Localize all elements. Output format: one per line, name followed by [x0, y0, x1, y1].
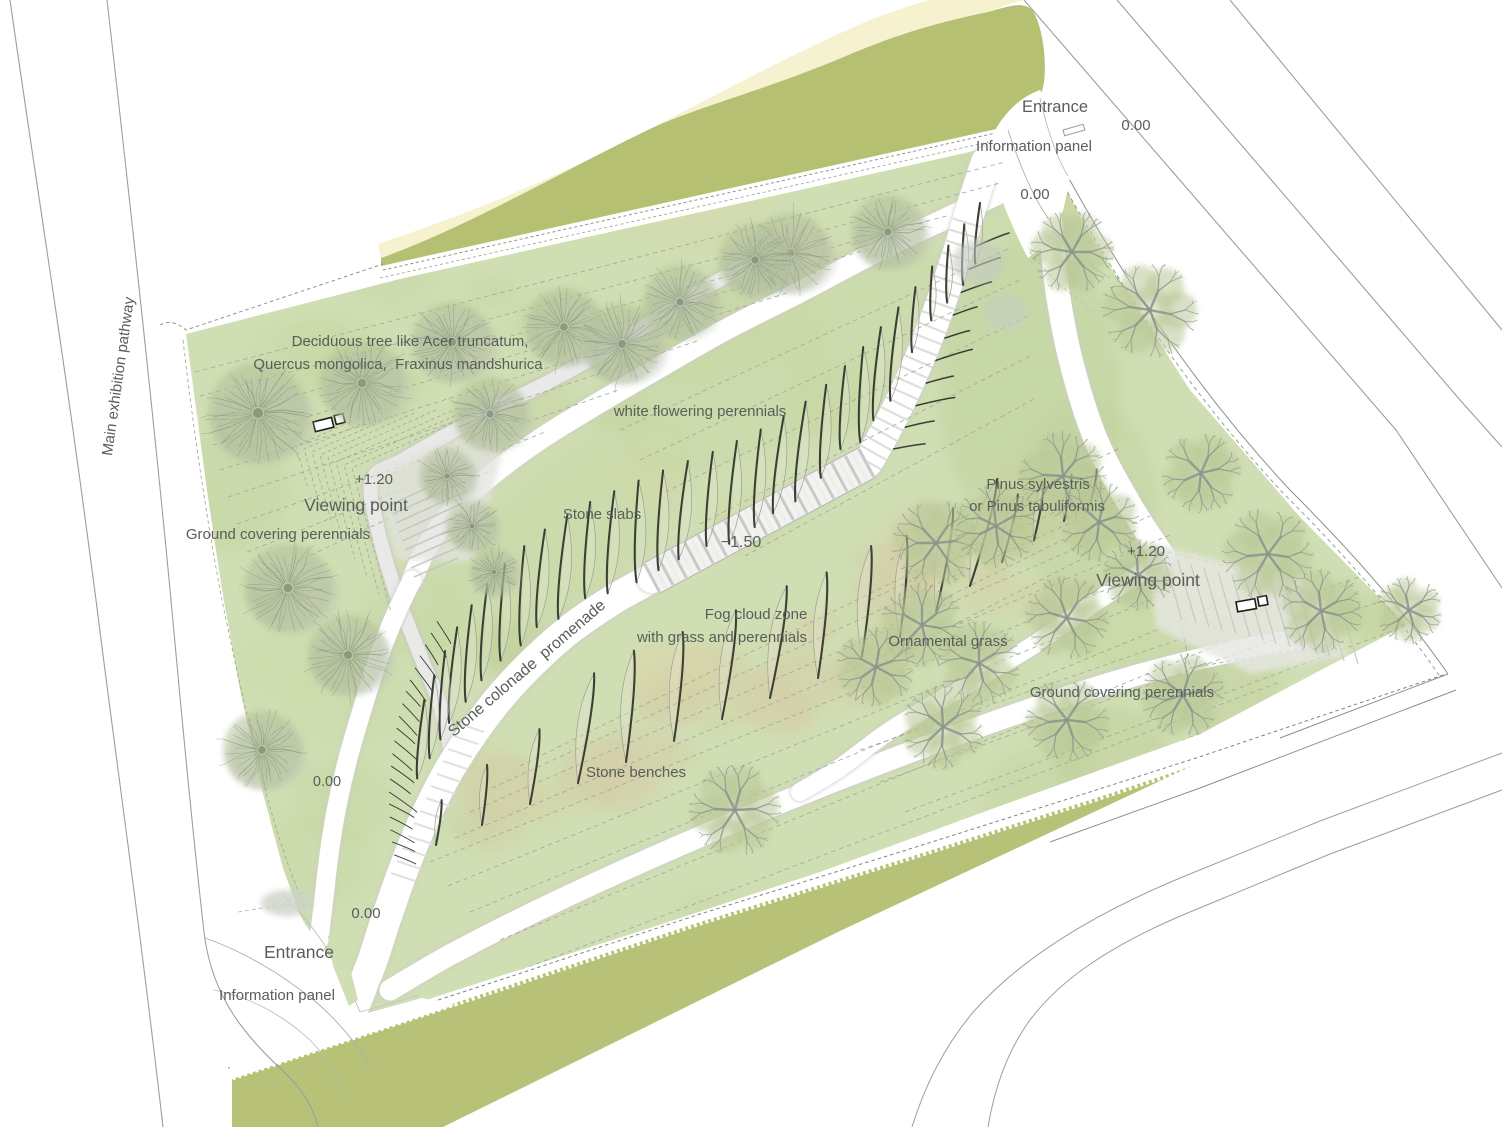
svg-text:Deciduous tree like Acer trunc: Deciduous tree like Acer truncatum, [292, 333, 529, 350]
svg-text:Viewing point: Viewing point [1096, 570, 1200, 590]
svg-text:0.00: 0.00 [1121, 117, 1150, 134]
svg-text:Viewing point: Viewing point [304, 495, 408, 515]
svg-text:Fog cloud zone: Fog cloud zone [705, 606, 808, 623]
svg-text:Ornamental grass: Ornamental grass [888, 633, 1007, 650]
svg-text:Information panel: Information panel [219, 987, 335, 1004]
svg-text:0.00: 0.00 [313, 774, 341, 790]
svg-text:+1.20: +1.20 [355, 471, 393, 488]
svg-text:Ground covering perennials: Ground covering perennials [186, 526, 370, 543]
svg-text:0.00: 0.00 [1020, 186, 1049, 203]
svg-text:Ground covering perennials: Ground covering perennials [1030, 684, 1214, 701]
svg-text:Entrance: Entrance [1022, 98, 1088, 116]
svg-text:Stone slabs: Stone slabs [563, 506, 641, 523]
svg-text:Pinus sylvestris: Pinus sylvestris [986, 476, 1089, 493]
svg-text:Stone benches: Stone benches [586, 764, 686, 781]
svg-text:Quercus mongolica, Fraxinus m: Quercus mongolica, Fraxinus mandshurica [253, 356, 543, 373]
svg-text:+1.20: +1.20 [1127, 543, 1165, 560]
svg-text:or Pinus tabuliformis: or Pinus tabuliformis [969, 498, 1105, 515]
svg-text:Entrance: Entrance [264, 942, 334, 962]
svg-text:white flowering perennials: white flowering perennials [613, 403, 787, 420]
svg-text:with grass and perennials: with grass and perennials [636, 629, 807, 646]
svg-text:0.00: 0.00 [351, 905, 380, 922]
svg-text:Information panel: Information panel [976, 138, 1092, 155]
svg-text:−1.50: −1.50 [721, 534, 762, 551]
